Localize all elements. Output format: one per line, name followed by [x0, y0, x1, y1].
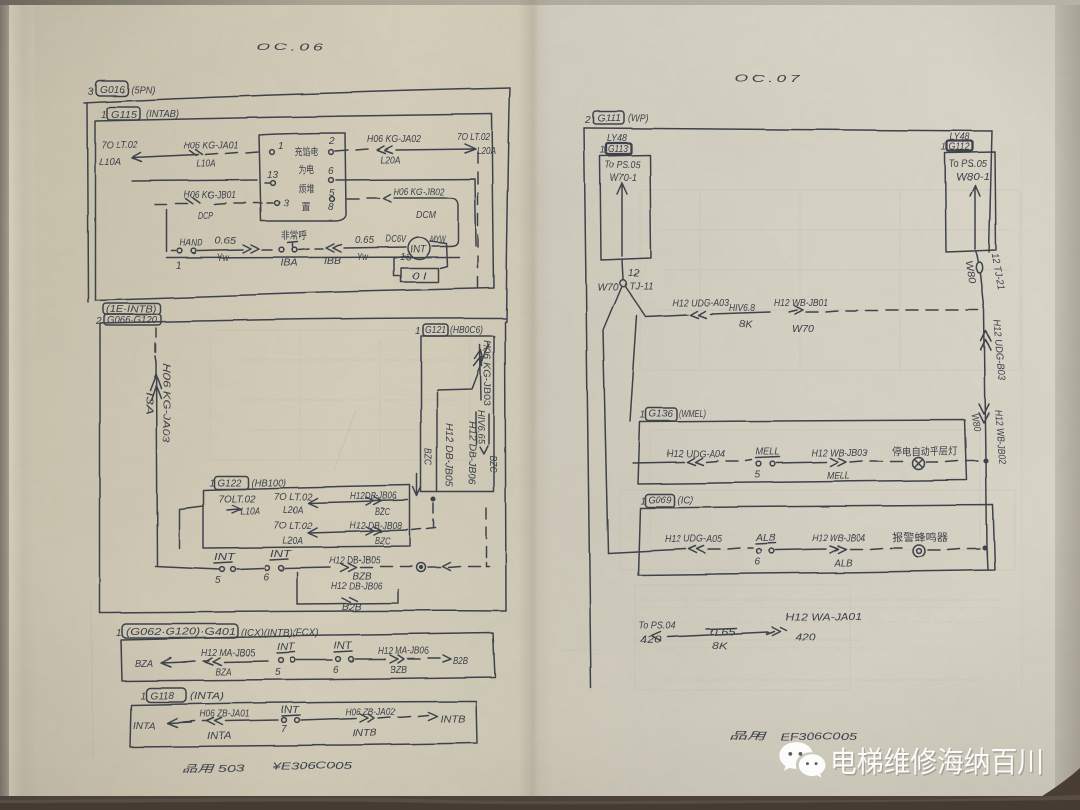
- svg-text:MELL: MELL: [756, 447, 780, 458]
- svg-text:G111: G111: [597, 113, 621, 124]
- svg-text:3: 3: [283, 198, 289, 209]
- svg-text:为电: 为电: [298, 163, 314, 176]
- svg-text:H12 MA-JB05: H12 MA-JB05: [201, 648, 255, 659]
- svg-text:置: 置: [301, 201, 310, 213]
- svg-text:12: 12: [628, 268, 640, 279]
- svg-text:H12 WB-JB03: H12 WB-JB03: [811, 448, 867, 459]
- svg-text:7: 7: [281, 724, 287, 735]
- svg-text:H12 WB-JB01: H12 WB-JB01: [774, 298, 828, 309]
- svg-text:(IC): (IC): [677, 495, 693, 506]
- svg-text:非常呼: 非常呼: [281, 229, 307, 242]
- svg-text:1: 1: [278, 141, 284, 152]
- svg-text:(INTA): (INTA): [190, 691, 224, 702]
- svg-text:2: 2: [584, 115, 591, 126]
- svg-text:H12 DB-JB05: H12 DB-JB05: [329, 555, 380, 566]
- svg-text:INTB: INTB: [440, 714, 465, 725]
- svg-text:L20A: L20A: [283, 505, 303, 516]
- svg-text:INT: INT: [334, 641, 353, 652]
- svg-text:G016: G016: [100, 85, 125, 96]
- svg-text:H12 DB-JB06: H12 DB-JB06: [331, 581, 382, 592]
- svg-text:G112: G112: [949, 142, 970, 153]
- svg-text:(INTAB): (INTAB): [146, 109, 179, 120]
- svg-text:BZA: BZA: [215, 667, 231, 678]
- svg-text:电梯维修海纳百川: 电梯维修海纳百川: [830, 746, 1044, 779]
- svg-text:8K: 8K: [712, 641, 729, 652]
- svg-text:3: 3: [88, 87, 94, 98]
- svg-text:8K: 8K: [739, 319, 753, 330]
- svg-text:B2B: B2B: [453, 656, 468, 667]
- svg-text:(HB0C6): (HB0C6): [450, 325, 483, 336]
- svg-text:W80-1: W80-1: [956, 172, 990, 183]
- svg-text:G113: G113: [608, 144, 628, 155]
- svg-text:(5PN): (5PN): [131, 85, 155, 96]
- svg-text:W70-1: W70-1: [610, 173, 637, 184]
- svg-text:BZC: BZC: [422, 449, 433, 467]
- svg-text:H12 DB-JB08: H12 DB-JB08: [350, 521, 402, 532]
- svg-text:ALB: ALB: [833, 558, 852, 569]
- svg-text:1: 1: [415, 326, 421, 337]
- svg-text:H06 ZB-JA02: H06 ZB-JA02: [345, 707, 395, 718]
- svg-text:13: 13: [267, 170, 279, 181]
- svg-text:OC.06: OC.06: [256, 42, 326, 53]
- svg-text:BZC: BZC: [375, 536, 391, 547]
- svg-text:BZC: BZC: [487, 456, 498, 474]
- svg-text:TJ-11: TJ-11: [629, 281, 653, 292]
- svg-text:1: 1: [209, 478, 215, 489]
- svg-text:品用: 品用: [729, 731, 767, 742]
- svg-text:7O LT.02: 7O LT.02: [457, 132, 490, 143]
- svg-text:H12 UDG-A03: H12 UDG-A03: [672, 298, 729, 309]
- svg-text:To PS.05: To PS.05: [949, 159, 987, 170]
- svg-text:0.65: 0.65: [710, 627, 736, 638]
- svg-text:W70: W70: [792, 324, 814, 335]
- svg-text:6: 6: [328, 166, 334, 177]
- svg-text:(G062·G120)·G401: (G062·G120)·G401: [126, 627, 236, 638]
- svg-text:(WP): (WP): [628, 113, 648, 124]
- svg-text:DCP: DCP: [198, 211, 213, 222]
- svg-text:MELL: MELL: [827, 471, 850, 482]
- svg-text:烦堆: 烦堆: [298, 182, 314, 195]
- svg-text:6: 6: [755, 557, 761, 568]
- svg-text:DC6V: DC6V: [386, 234, 407, 245]
- svg-text:INT: INT: [410, 244, 427, 255]
- svg-text:L10A: L10A: [197, 159, 216, 170]
- svg-text:G118: G118: [150, 691, 174, 702]
- svg-text:LY48: LY48: [607, 133, 627, 144]
- svg-text:H12 UDG-A04: H12 UDG-A04: [667, 449, 725, 460]
- svg-text:8: 8: [328, 202, 334, 213]
- svg-text:IBA: IBA: [281, 258, 298, 269]
- svg-text:INT: INT: [270, 549, 292, 560]
- svg-text:1: 1: [941, 142, 947, 153]
- svg-text:1: 1: [140, 691, 146, 702]
- svg-text:HAND: HAND: [180, 238, 203, 249]
- svg-text:MYW: MYW: [430, 234, 446, 245]
- svg-text:Yw: Yw: [217, 253, 230, 264]
- svg-text:INTA: INTA: [207, 731, 232, 742]
- svg-text:1: 1: [101, 110, 107, 121]
- svg-text:Yw: Yw: [357, 252, 369, 263]
- svg-text:5: 5: [215, 575, 221, 586]
- svg-text:7O LT.02: 7O LT.02: [274, 492, 312, 503]
- svg-text:W70: W70: [597, 282, 618, 293]
- svg-text:ALB: ALB: [755, 533, 776, 544]
- svg-text:420: 420: [795, 632, 816, 643]
- svg-text:2: 2: [95, 316, 102, 327]
- svg-text:1: 1: [600, 145, 606, 156]
- svg-text:G115: G115: [111, 110, 137, 121]
- svg-text:0.65: 0.65: [355, 235, 374, 246]
- svg-text:INTB: INTB: [352, 728, 377, 739]
- svg-text:DCM: DCM: [416, 210, 437, 221]
- svg-text:G069: G069: [648, 495, 671, 506]
- svg-text:(WMEL): (WMEL): [679, 409, 706, 420]
- svg-text:To PS.04: To PS.04: [639, 621, 676, 632]
- svg-text:品用 503: 品用 503: [181, 764, 246, 775]
- svg-text:2: 2: [328, 136, 335, 147]
- svg-text:(1E·INTB): (1E·INTB): [106, 304, 156, 315]
- svg-text:H12 WB-JB04: H12 WB-JB04: [812, 533, 865, 544]
- svg-text:BZB: BZB: [390, 665, 407, 676]
- svg-text:INTA: INTA: [133, 721, 155, 732]
- svg-text:INT: INT: [277, 642, 296, 653]
- svg-text:EF306C005: EF306C005: [780, 732, 858, 743]
- svg-text:5: 5: [329, 188, 335, 199]
- svg-text:1: 1: [176, 261, 182, 272]
- svg-text:IBB: IBB: [324, 256, 341, 267]
- svg-text:G121: G121: [425, 325, 446, 336]
- svg-text:H06 KG-JA01: H06 KG-JA01: [184, 141, 239, 152]
- svg-text:INT: INT: [214, 552, 236, 563]
- svg-text:To PS.05: To PS.05: [605, 160, 640, 171]
- svg-text:H12 DB-JB05: H12 DB-JB05: [443, 423, 454, 487]
- svg-text:7O LT.02: 7O LT.02: [101, 140, 138, 151]
- svg-text:H12 UDG-A05: H12 UDG-A05: [665, 534, 722, 545]
- svg-text:6: 6: [333, 665, 339, 676]
- svg-text:L20A: L20A: [477, 146, 496, 157]
- svg-text:H12 DB-JB06: H12 DB-JB06: [466, 421, 477, 485]
- svg-text:INT: INT: [281, 705, 300, 716]
- svg-text:420: 420: [640, 635, 663, 646]
- svg-text:L10A: L10A: [99, 157, 121, 168]
- svg-text:5: 5: [275, 667, 281, 678]
- svg-text:(HB100): (HB100): [251, 478, 286, 489]
- svg-text:充馅电: 充馅电: [294, 145, 318, 158]
- svg-text:G066·G120: G066·G120: [107, 315, 157, 326]
- svg-text:H12 WA-JA01: H12 WA-JA01: [785, 612, 862, 623]
- svg-text:BZC: BZC: [375, 507, 391, 518]
- svg-text:OC.07: OC.07: [735, 74, 803, 85]
- svg-text:0.65: 0.65: [215, 236, 236, 247]
- svg-text:H06 KG-JB03: H06 KG-JB03: [481, 340, 492, 406]
- svg-text:1: 1: [640, 410, 646, 421]
- svg-text:H06 KG-JA03: H06 KG-JA03: [160, 363, 171, 444]
- svg-text:H06 KG-JB02: H06 KG-JB02: [393, 187, 444, 198]
- svg-text:(ICX)(INTB)(FCX): (ICX)(INTB)(FCX): [241, 628, 319, 639]
- svg-text:H06 KG-JB01: H06 KG-JB01: [184, 190, 236, 201]
- svg-text:HIV6.8: HIV6.8: [729, 303, 755, 314]
- svg-text:G122: G122: [217, 478, 241, 489]
- svg-text:BZA: BZA: [135, 659, 153, 670]
- svg-text:H12DB-JB06: H12DB-JB06: [350, 491, 397, 502]
- svg-text:B2B: B2B: [342, 602, 361, 613]
- svg-text:7O LT.02: 7O LT.02: [274, 521, 312, 532]
- svg-text:6: 6: [263, 572, 269, 583]
- svg-text:L20A: L20A: [283, 536, 303, 547]
- svg-text:停电自动平层灯: 停电自动平层灯: [892, 445, 958, 458]
- svg-text:报警蜂鸣器: 报警蜂鸣器: [892, 531, 948, 544]
- svg-text:L10A: L10A: [240, 506, 260, 517]
- svg-text:H06 KG-JA02: H06 KG-JA02: [367, 134, 421, 145]
- svg-text:¥E306C005: ¥E306C005: [272, 761, 353, 772]
- svg-text:G136: G136: [649, 409, 673, 420]
- svg-text:I3A: I3A: [143, 392, 154, 415]
- svg-text:13: 13: [400, 252, 412, 263]
- svg-text:7OLT.02: 7OLT.02: [218, 494, 255, 505]
- svg-text:H12 MA-JB06: H12 MA-JB06: [378, 646, 429, 657]
- svg-text:1: 1: [116, 628, 122, 639]
- svg-text:5: 5: [755, 470, 761, 481]
- svg-text:L20A: L20A: [380, 155, 400, 166]
- svg-text:1: 1: [640, 496, 646, 507]
- svg-text:0 I: 0 I: [412, 271, 426, 282]
- svg-text:H06 ZB-JA01: H06 ZB-JA01: [200, 709, 250, 720]
